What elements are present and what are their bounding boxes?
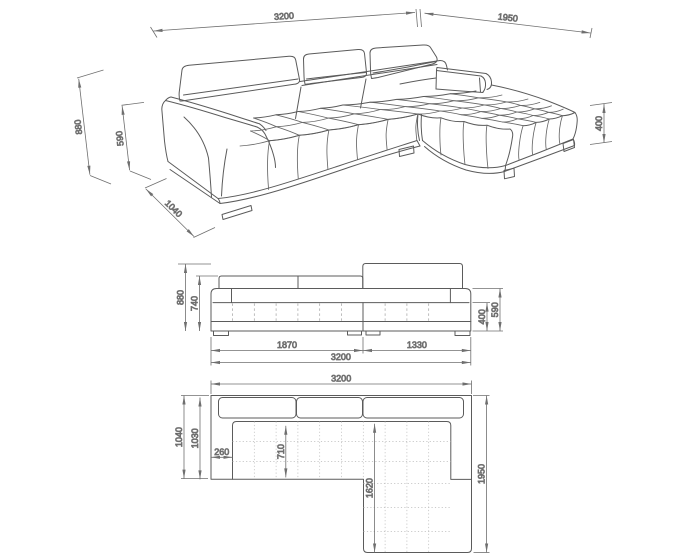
svg-text:3200: 3200 [331,352,351,362]
svg-text:3200: 3200 [331,374,351,384]
svg-text:1030: 1030 [190,428,200,448]
svg-text:400: 400 [594,116,604,131]
svg-text:880: 880 [72,119,84,135]
svg-text:590: 590 [490,302,500,317]
svg-text:710: 710 [276,444,286,459]
svg-text:260: 260 [214,447,229,457]
svg-text:1330: 1330 [407,340,427,350]
svg-text:740: 740 [190,296,200,311]
svg-text:1040: 1040 [174,427,184,447]
svg-text:400: 400 [477,309,487,324]
svg-text:880: 880 [176,290,186,305]
svg-text:1870: 1870 [277,340,297,350]
svg-text:3200: 3200 [274,11,295,22]
svg-text:1620: 1620 [365,478,375,498]
svg-text:1950: 1950 [477,464,487,484]
svg-text:590: 590 [114,130,126,146]
